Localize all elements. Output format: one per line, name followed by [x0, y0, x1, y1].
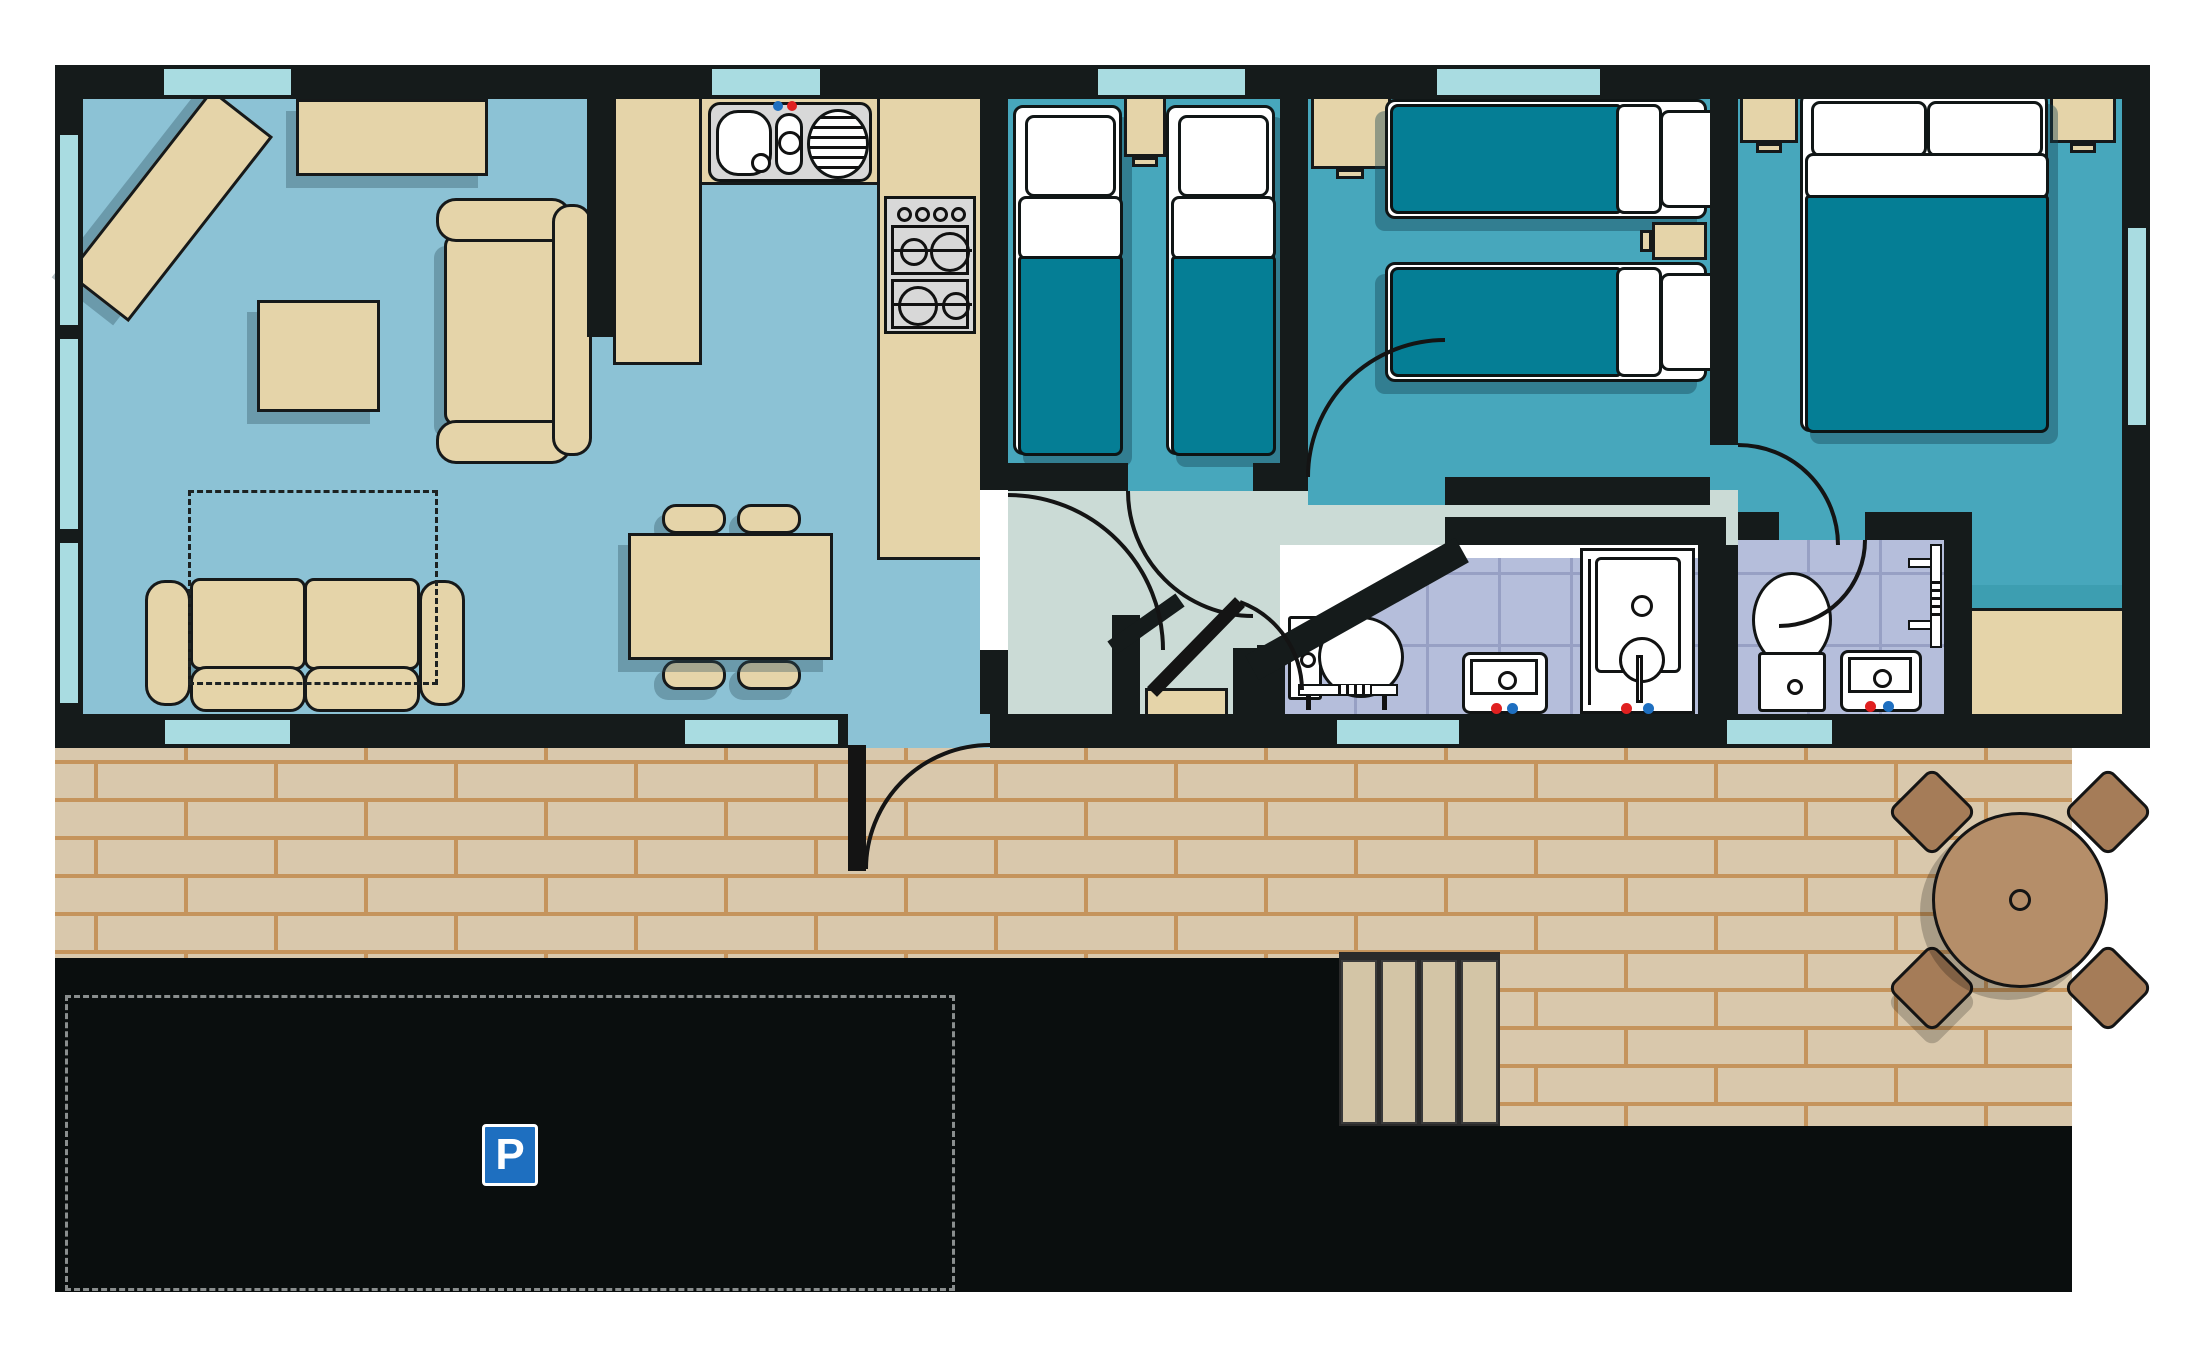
burner-cross	[894, 303, 972, 306]
double-bed	[1800, 92, 2048, 432]
armchair	[436, 198, 592, 464]
wall-closet-west	[1112, 615, 1140, 714]
bed-pillow	[1927, 101, 2043, 157]
entrance-threshold	[848, 714, 990, 748]
tap-hot-icon	[1491, 703, 1502, 714]
sink-drain	[751, 153, 771, 173]
parking-sign-label: P	[495, 1130, 524, 1180]
sink-center-drain	[778, 131, 802, 155]
toilet-flush	[1787, 679, 1803, 695]
master-wardrobe	[1952, 608, 2122, 716]
dining-chair	[737, 504, 801, 534]
hob-burner-box-top	[891, 225, 969, 275]
dining-chair	[737, 660, 801, 690]
window-bottom-lounge1	[165, 720, 290, 744]
tap-hot-icon	[1865, 701, 1876, 712]
bed-pillow	[1025, 115, 1116, 197]
hob-knob	[915, 207, 930, 222]
ladder-bar-top	[1908, 558, 1932, 568]
hob-burner-box-bottom	[891, 279, 969, 329]
bed-cover	[1805, 195, 2049, 433]
wall-lounge-bed1	[980, 99, 1008, 490]
tap-cold-icon	[773, 101, 783, 111]
wall-ensuite-north-a	[1738, 512, 1779, 540]
sofa-bed-outline	[188, 490, 438, 685]
wall-bed2-master-north	[1710, 99, 1738, 445]
sink-drainer	[807, 109, 869, 179]
burner-small	[942, 292, 970, 320]
tap-cold-icon	[1643, 703, 1654, 714]
ensuite-door-threshold	[1779, 512, 1865, 540]
ladder-rungs	[1932, 576, 1940, 616]
bedside-unit	[1652, 222, 1707, 260]
armchair-seat	[444, 234, 562, 426]
bed-cover	[1390, 104, 1621, 214]
hob-knob	[951, 207, 966, 222]
bedside-unit-ledge	[1132, 157, 1158, 167]
armchair-back	[552, 204, 592, 456]
tap-hot-icon	[787, 101, 797, 111]
bedside-cabinet-left-knob	[1756, 143, 1782, 153]
dining-chair	[662, 504, 726, 534]
single-bed	[1013, 105, 1122, 455]
window-left-3	[60, 543, 78, 703]
bed-sheet	[1616, 267, 1662, 377]
tap-hot-icon	[1621, 703, 1632, 714]
bed-pillow	[1811, 101, 1927, 157]
bedside-cabinet-right-knob	[2070, 143, 2096, 153]
towel-rail-leg	[1306, 696, 1311, 710]
wall-lounge-hall-stub	[980, 650, 1008, 714]
bed2-door-threshold	[1308, 477, 1445, 505]
bed-sheet	[1018, 196, 1123, 260]
hob-knob	[933, 207, 948, 222]
towel-rail	[1298, 684, 1398, 712]
burner-small	[900, 238, 928, 266]
towel-rail-leg	[1382, 696, 1387, 710]
sideboard	[296, 99, 488, 176]
shower-drain	[1631, 595, 1653, 617]
hob-knob	[897, 207, 912, 222]
bedside-unit-ledge	[1640, 230, 1652, 252]
tap-cold-icon	[1507, 703, 1518, 714]
wall-bed1-east	[1280, 99, 1308, 490]
single-bed	[1385, 99, 1707, 219]
burner-large	[930, 232, 970, 272]
window-top-lounge	[164, 69, 291, 95]
step-plank	[1381, 960, 1417, 1124]
window-top-bedroom1	[1098, 69, 1245, 95]
tap-cold-icon	[1883, 701, 1894, 712]
window-bottom-ensuite	[1727, 720, 1832, 744]
bedside-unit	[1124, 99, 1166, 157]
dining-chair	[662, 660, 726, 690]
parking-sign: P	[482, 1124, 538, 1186]
shower-cubicle	[1580, 548, 1695, 714]
master-door-threshold	[1710, 445, 1738, 490]
wall-closet-east	[1233, 648, 1261, 714]
bed-cover	[1018, 256, 1123, 456]
window-bottom-bathroom	[1337, 720, 1459, 744]
burner-large	[898, 286, 938, 326]
wardrobe-ledge	[1336, 169, 1364, 179]
wardrobe	[1311, 99, 1391, 169]
burner-cross	[894, 249, 972, 252]
wall-bed2-south	[1445, 477, 1710, 505]
ensuite-basin	[1840, 650, 1922, 712]
shower-door-line	[1588, 559, 1591, 705]
step-plank	[1421, 960, 1457, 1124]
bedside-cabinet-right	[2050, 99, 2116, 143]
bed-sheet	[1616, 104, 1662, 214]
wall-bath-east	[1698, 517, 1726, 714]
ladder-bar-bottom	[1908, 620, 1932, 630]
step-plank	[1341, 960, 1377, 1124]
window-left-2	[60, 339, 78, 529]
floor-plan: P	[0, 0, 2206, 1348]
bed1-door-threshold	[1128, 463, 1253, 491]
ensuite-toilet-base	[1758, 652, 1826, 712]
kitchen-counter-left	[613, 99, 702, 365]
wall-kitchen-partition	[587, 99, 613, 337]
dining-table	[628, 533, 833, 660]
bed-cover	[1171, 256, 1276, 456]
kitchen-hob	[884, 196, 976, 334]
window-bottom-lounge2	[685, 720, 838, 744]
bedside-cabinet-left	[1740, 99, 1798, 143]
kitchen-sink-unit	[708, 102, 872, 182]
bed-cover	[1390, 267, 1621, 377]
window-top-kitchen	[712, 69, 820, 95]
single-bed	[1166, 105, 1275, 455]
towel-rail-hatch	[1338, 685, 1372, 694]
basin-drain	[1873, 669, 1892, 688]
wall-ensuite-north-b	[1865, 512, 1944, 540]
wall-bath-west	[1257, 645, 1285, 714]
single-bed	[1385, 262, 1707, 382]
basin-drain	[1498, 671, 1517, 690]
wall-bed1-south-a	[1008, 463, 1128, 491]
decking-steps	[1339, 952, 1500, 1126]
wash-basin	[1462, 652, 1548, 714]
wall-bath-north	[1445, 517, 1726, 545]
sofa-arm-left	[145, 580, 191, 706]
step-plank	[1461, 960, 1498, 1124]
bed-pillow	[1178, 115, 1269, 197]
wall-bottom-east	[990, 714, 2150, 748]
shower-lever	[1636, 655, 1643, 703]
bed-sheet	[1805, 153, 2049, 199]
garden-table-set	[1900, 780, 2140, 1020]
bed-sheet	[1171, 196, 1276, 260]
window-top-bedroom2	[1437, 69, 1600, 95]
garden-table-hub	[2009, 889, 2031, 911]
wall-ensuite-east	[1944, 512, 1972, 714]
airing-cupboard-heater	[1145, 688, 1228, 716]
towel-ladder	[1908, 544, 1946, 648]
toilet-flush	[1300, 652, 1316, 668]
window-right-master	[2128, 228, 2146, 425]
window-left-1	[60, 135, 78, 325]
coffee-table	[257, 300, 380, 412]
